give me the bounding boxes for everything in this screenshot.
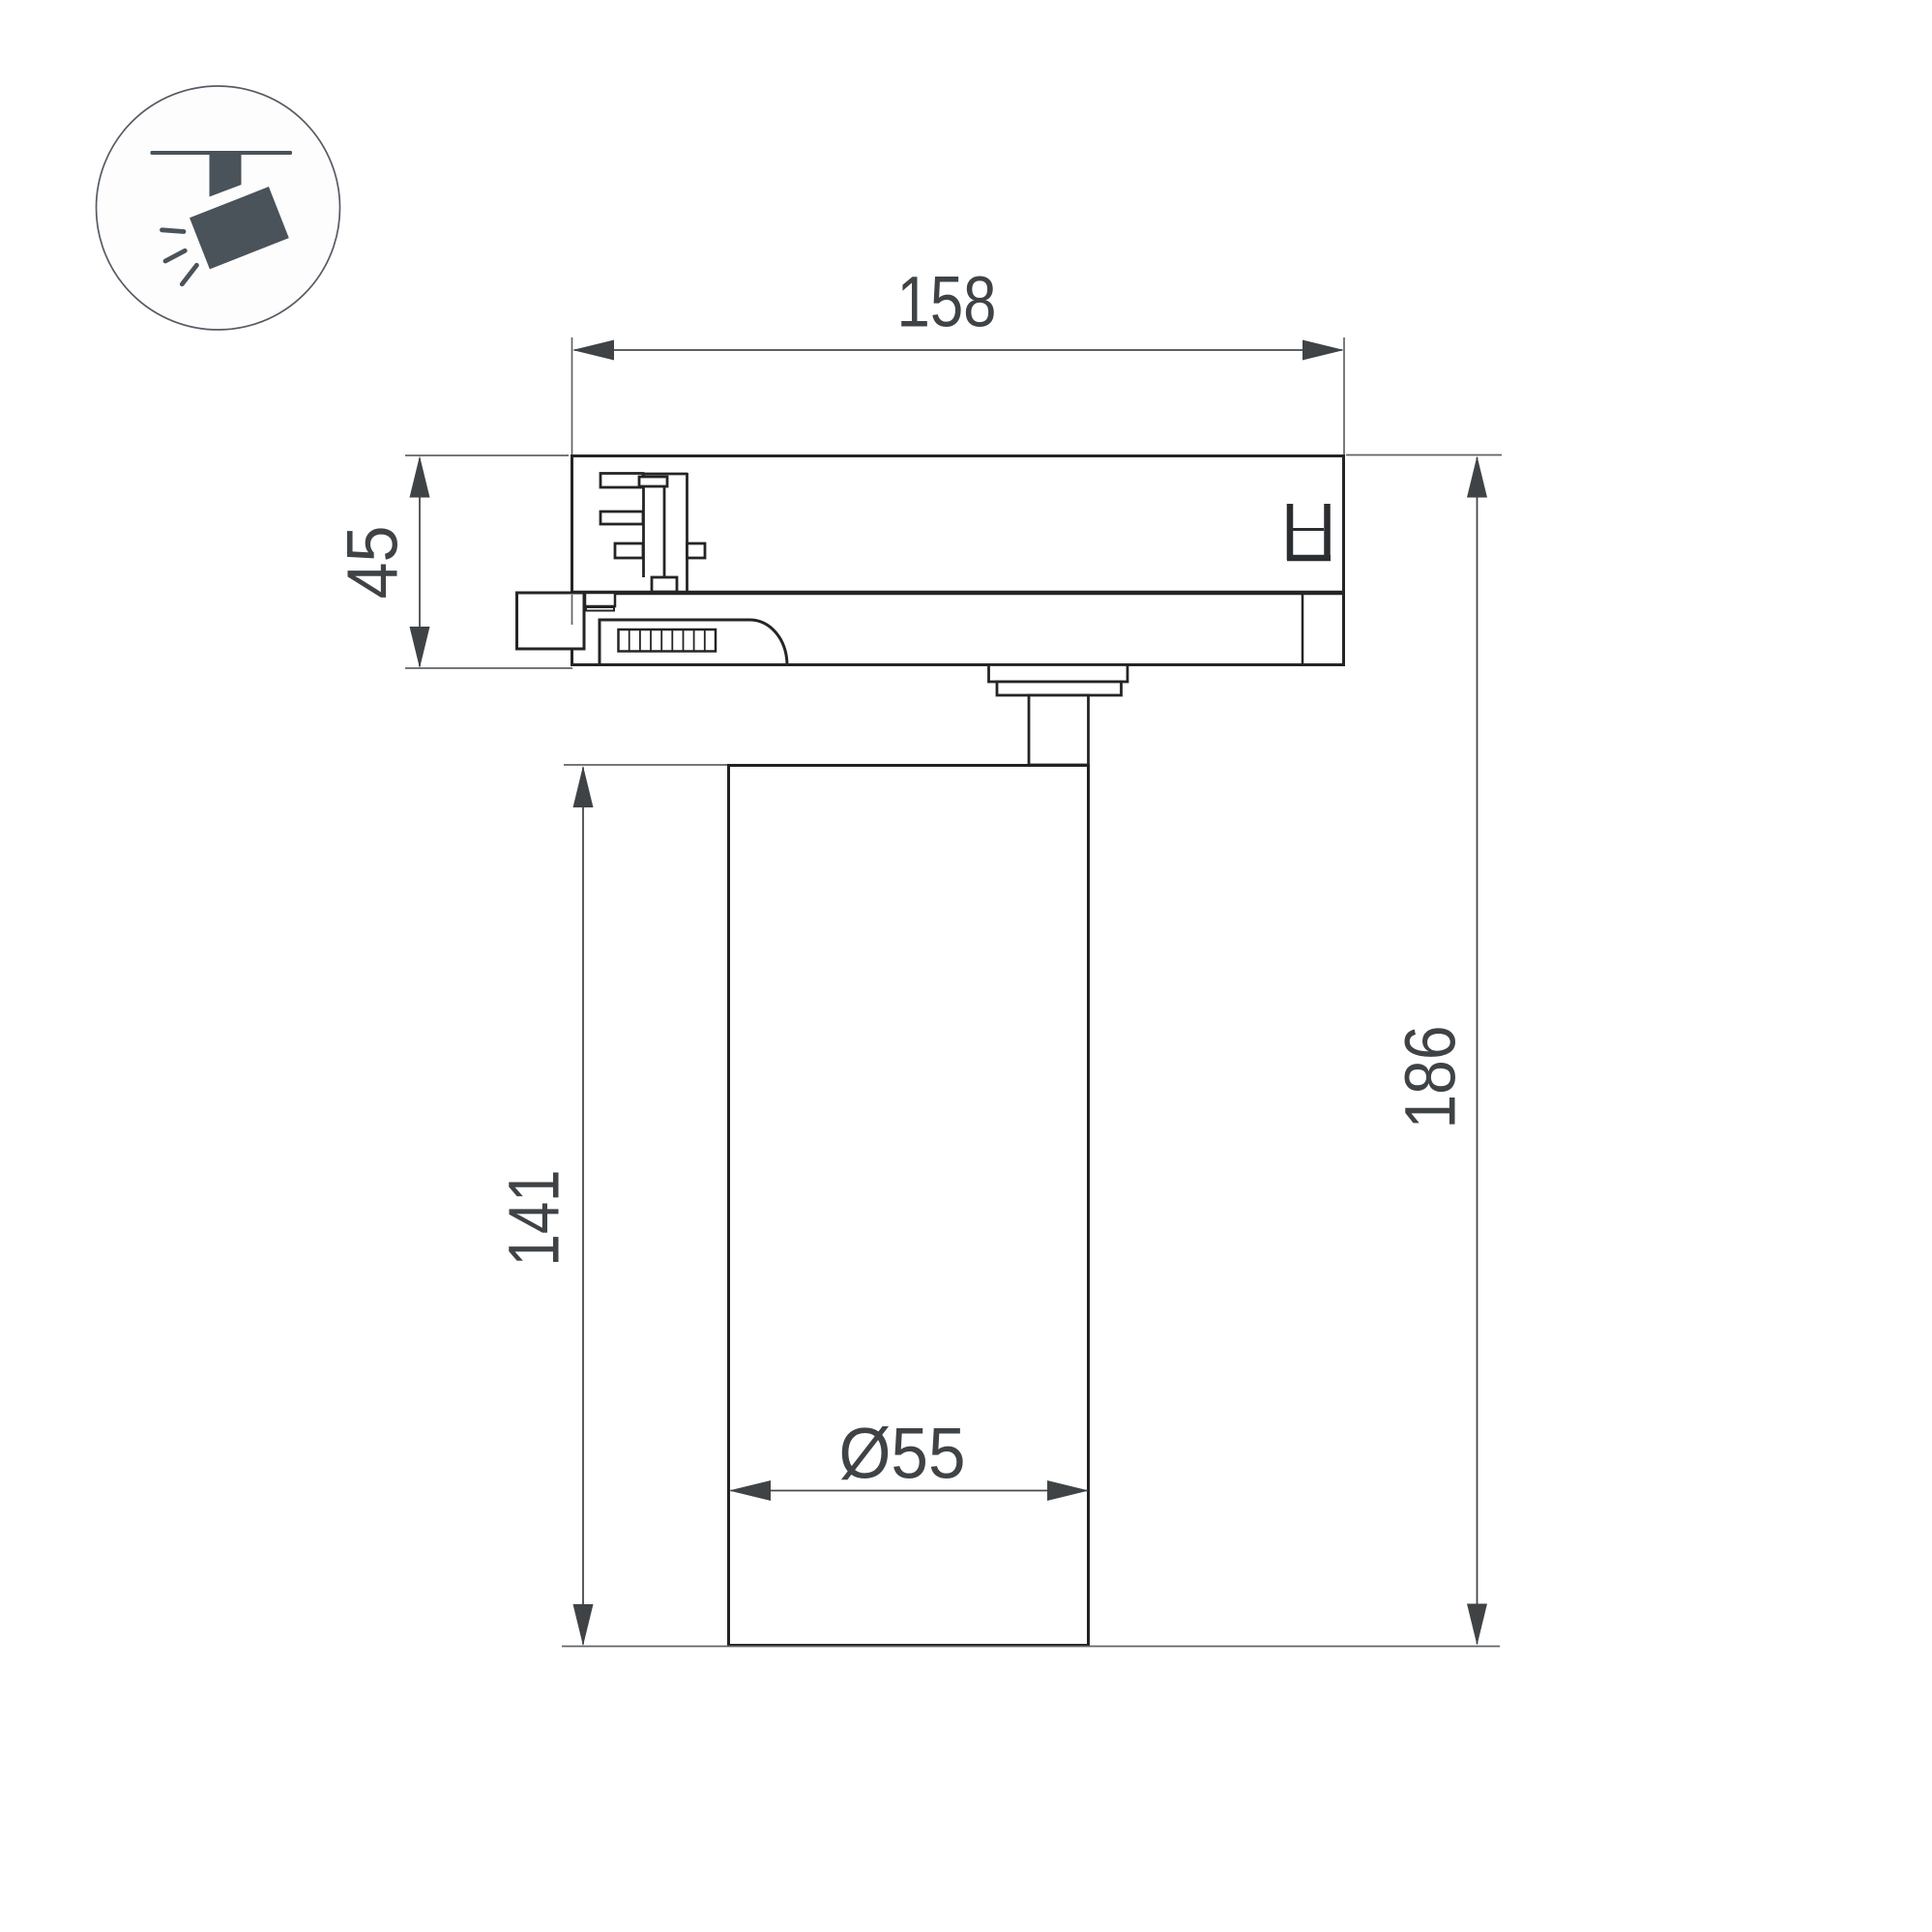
svg-text:Ø55: Ø55 <box>839 1414 966 1494</box>
svg-text:186: 186 <box>1390 1026 1471 1129</box>
svg-text:141: 141 <box>494 1170 574 1267</box>
svg-text:158: 158 <box>897 262 997 342</box>
svg-text:45: 45 <box>333 526 413 600</box>
